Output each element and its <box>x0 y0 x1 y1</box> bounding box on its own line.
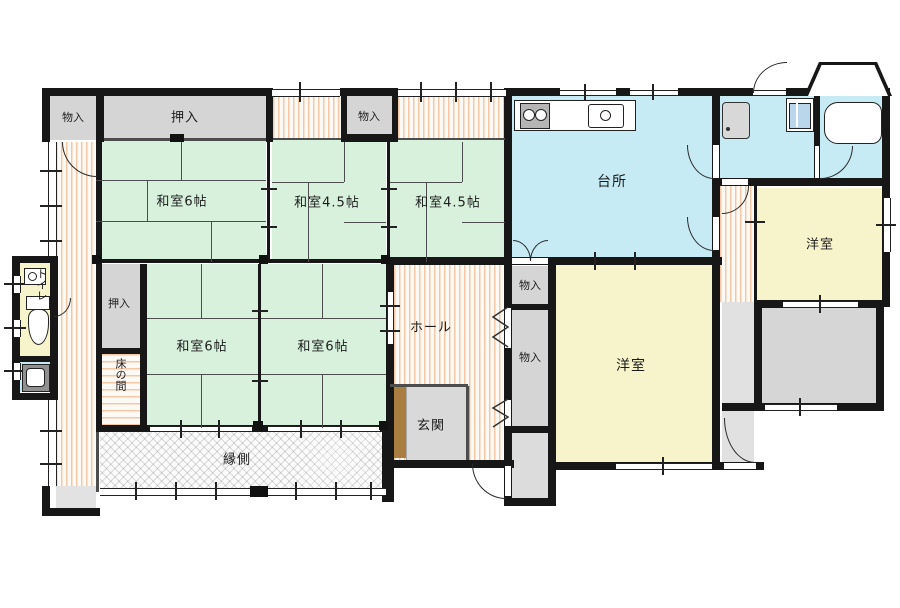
wall-segment <box>42 88 272 96</box>
wall-segment <box>504 426 556 433</box>
window-tick <box>40 205 62 207</box>
tatami-line <box>344 222 386 223</box>
wall-segment <box>100 348 140 354</box>
window <box>765 404 837 411</box>
room-label: 物入 <box>358 108 380 124</box>
tatami-line <box>147 318 258 319</box>
tatami-line <box>462 142 463 182</box>
room-label: 縁側 <box>223 449 251 468</box>
veranda-strip-top-2 <box>398 96 505 138</box>
window-tick <box>799 398 801 416</box>
entrance-edge-line <box>466 386 469 460</box>
tatami-line <box>322 264 323 318</box>
wall-segment <box>96 259 386 263</box>
tatami-line <box>181 142 182 180</box>
window-tick <box>490 82 492 102</box>
tatami-line <box>261 318 386 319</box>
window <box>13 363 21 380</box>
window-tick <box>40 463 62 465</box>
window-tick <box>215 482 217 500</box>
window-tick <box>380 305 400 307</box>
sliding-door <box>268 426 380 432</box>
entrance-step <box>392 386 406 458</box>
pillar <box>381 255 390 264</box>
window-tick <box>662 457 664 475</box>
tatami-line <box>96 221 266 222</box>
door-stop <box>170 134 184 142</box>
door-opening <box>815 146 819 178</box>
room-label: 物入 <box>519 277 541 293</box>
window-tick <box>455 82 457 102</box>
strip-end-block <box>56 486 96 508</box>
room-label: 和室4.5帖 <box>415 192 481 211</box>
room-label: 和室6帖 <box>297 336 348 355</box>
window-tick <box>876 224 896 226</box>
washbasin-icon <box>722 102 750 139</box>
window <box>616 463 712 470</box>
wall-segment <box>512 304 548 310</box>
window-tick <box>340 420 342 438</box>
window-tick <box>4 283 26 285</box>
wall-segment <box>12 393 56 400</box>
door-opening <box>722 179 748 185</box>
room-label: 玄関 <box>417 415 445 434</box>
window <box>560 90 616 96</box>
window-tick <box>4 327 26 329</box>
fusuma-tick <box>381 188 397 190</box>
entrance-edge-line <box>390 384 468 387</box>
window-tick <box>135 482 137 500</box>
wall-segment <box>340 88 398 96</box>
pillar <box>379 421 388 430</box>
room-label: 押入 <box>171 107 199 126</box>
tatami-line <box>96 180 266 181</box>
rail-line <box>273 138 341 140</box>
wall-partition <box>387 140 390 260</box>
window <box>272 89 340 97</box>
window <box>13 320 21 337</box>
tatami-line <box>211 221 212 262</box>
room-gray-bottom-right <box>757 308 877 403</box>
window-tick <box>652 84 654 100</box>
faucet-icon <box>600 110 611 121</box>
washing-machine-lid-line <box>796 103 798 127</box>
wall-segment <box>42 88 50 142</box>
wall-segment <box>876 300 884 411</box>
window-tick <box>175 482 177 500</box>
room-label: 物入 <box>62 109 84 125</box>
tatami-line <box>322 374 323 428</box>
wall-segment <box>96 88 104 142</box>
window-tick <box>40 240 62 242</box>
tatami-line <box>344 142 345 182</box>
washbasin-drain <box>726 127 730 131</box>
room-label: 洋室 <box>806 234 834 253</box>
window-tick <box>299 82 301 102</box>
door-tick <box>745 221 765 223</box>
front-door-arc <box>472 464 506 499</box>
room-label: 和室6帖 <box>176 336 227 355</box>
stove-burner-icon <box>535 109 547 121</box>
fusuma-tick <box>252 380 268 382</box>
wall-segment <box>754 300 762 410</box>
door-opening <box>724 463 756 469</box>
wall-segment <box>504 88 512 264</box>
window-tick <box>300 420 302 438</box>
fusuma-tick <box>261 226 277 228</box>
fusuma-tick <box>261 188 277 190</box>
folding-door-icon <box>490 306 510 352</box>
window-tick <box>295 482 297 500</box>
room-label: 台所 <box>597 171 627 191</box>
room-label: 洋室 <box>616 355 646 375</box>
rail-line <box>398 138 505 140</box>
wall-segment <box>42 508 100 516</box>
bathtub-icon <box>824 102 882 144</box>
wall-segment <box>506 88 560 96</box>
door-tick <box>634 252 636 270</box>
room-label: 和室6帖 <box>156 191 207 210</box>
wall-segment <box>504 498 556 506</box>
wall-segment <box>140 264 147 430</box>
tatami-line <box>147 374 258 375</box>
window <box>48 400 57 486</box>
window-tick <box>40 430 62 432</box>
utility-sink-basin <box>26 368 45 387</box>
veranda-glass-doors <box>100 488 386 496</box>
window <box>630 90 678 96</box>
window-tick <box>218 420 220 438</box>
room-label: 和室4.5帖 <box>294 192 360 211</box>
wall-segment <box>50 256 58 400</box>
washing-machine-drum <box>789 103 811 129</box>
window-tick <box>40 170 62 172</box>
wall-segment <box>20 356 56 362</box>
wall-segment <box>616 88 630 96</box>
veranda-strip-top-1 <box>273 96 341 138</box>
window <box>13 276 21 293</box>
entrance-porch <box>512 433 548 498</box>
window-tick <box>335 482 337 500</box>
wall-partition <box>267 140 270 260</box>
room-storage-hall-lower <box>512 310 548 426</box>
back-door-arc <box>753 62 787 93</box>
bay-window-glass <box>808 65 888 96</box>
wall-segment <box>96 140 102 432</box>
window-tick <box>180 420 182 438</box>
room-label: 押入 <box>108 295 130 311</box>
room-label: 床の間 <box>112 358 128 391</box>
stove-burner-icon <box>523 109 535 121</box>
pillar <box>92 255 101 264</box>
wall-partition <box>258 264 261 428</box>
window-tick <box>420 82 422 102</box>
tatami-line <box>201 374 202 428</box>
closet-front-rail <box>104 138 266 141</box>
room-label: 物入 <box>519 349 541 365</box>
tatami-line <box>261 374 386 375</box>
veranda-edge-line <box>96 432 99 492</box>
fusuma-tick <box>381 226 397 228</box>
sliding-door <box>387 292 394 344</box>
tatami-line <box>147 181 148 221</box>
pillar <box>259 255 268 264</box>
folding-door-icon <box>490 398 510 432</box>
window-tick <box>819 295 821 313</box>
room-label: ホール <box>410 317 452 336</box>
window-tick <box>584 84 586 100</box>
window-tick <box>380 330 400 332</box>
fusuma-tick <box>252 310 268 312</box>
room-label: トイレ <box>33 268 49 301</box>
window <box>48 142 57 256</box>
pillar <box>253 421 263 430</box>
tatami-line <box>201 264 202 318</box>
floor-plan: 物入 押入 物入 和室6帖 和室4.5帖 和室4.5帖 台所 洋室 押入 床の間… <box>0 0 900 608</box>
mullion-post <box>250 486 268 497</box>
door-tick <box>594 252 596 270</box>
tatami-line <box>462 222 505 223</box>
window-tick <box>370 482 372 500</box>
window <box>783 301 858 308</box>
wall-partition <box>754 186 757 302</box>
